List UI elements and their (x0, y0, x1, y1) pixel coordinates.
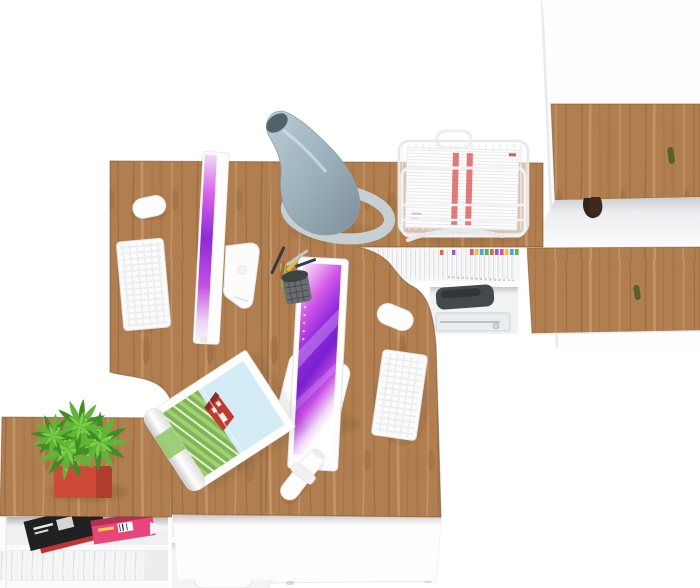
furniture-foot (286, 581, 294, 585)
wardrobe-door-lower (527, 247, 700, 334)
printer (435, 284, 494, 310)
wardrobe-cubby (529, 197, 700, 248)
wardrobe-door-upper (551, 104, 700, 200)
render-canvas (0, 0, 700, 588)
tray-papers (405, 148, 519, 231)
wardrobe (527, 0, 700, 348)
wardrobe-top (542, 0, 700, 104)
hanging-binders (0, 551, 145, 580)
keyboard-1 (116, 238, 171, 331)
document-tray (399, 131, 528, 245)
monitor-1-logo (238, 266, 247, 275)
